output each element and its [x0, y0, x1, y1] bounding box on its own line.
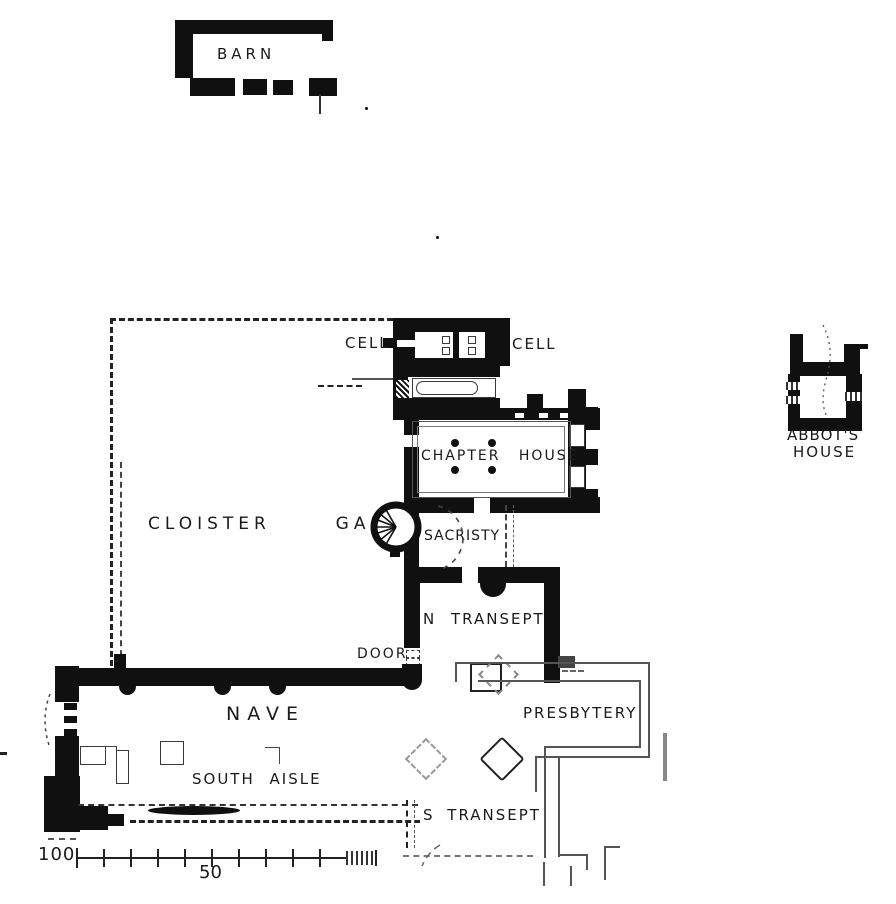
cloister-dashed-left	[110, 318, 113, 666]
south-wall-dashes	[130, 820, 420, 823]
cell-right-label: CELL	[512, 337, 557, 353]
presbytery-outer-top	[455, 662, 649, 664]
chapel-line-v2	[604, 846, 606, 880]
west-door-step-1	[64, 703, 77, 710]
transept-apse-bump	[480, 583, 506, 597]
abbot-east-door	[845, 392, 863, 401]
scale-mid-label: 50	[199, 864, 222, 883]
scale-tick-1	[103, 849, 105, 867]
presbytery-inner-bottom	[545, 746, 641, 748]
cell1-mark-a	[442, 336, 450, 344]
s-transept-east-line-2	[558, 757, 560, 857]
door-jamb-a	[406, 650, 420, 658]
chapter-east-window-1	[569, 424, 585, 447]
cloister-alley-line	[352, 378, 394, 380]
abbot-west-door-2	[786, 396, 800, 404]
door-label: DOOR	[357, 647, 408, 662]
cell2-mark-b	[468, 347, 476, 355]
abbots-house-label-1: ABBOT'S	[787, 428, 859, 444]
scale-hatch	[346, 851, 376, 865]
s-transept-dashed-west-2	[414, 800, 415, 848]
transept-north-wall	[404, 567, 560, 583]
chapter-column-sw	[451, 466, 459, 474]
presbytery-inner-top	[478, 680, 641, 682]
chapter-east-buttress-2	[584, 449, 598, 465]
chapter-column-nw	[451, 439, 459, 447]
barn-wall-top-end	[322, 20, 333, 41]
chapel-tick-1	[543, 862, 545, 886]
cloister-dashed-left-inner	[120, 462, 122, 666]
sacristy-west-wall	[404, 513, 419, 567]
s-transept-south-dashes	[403, 855, 533, 857]
stair-hatch	[396, 380, 409, 398]
transept-east-wall	[544, 583, 560, 683]
scale-tick-2	[130, 849, 132, 867]
page-speck-1	[365, 107, 368, 110]
presbytery-outer-right	[648, 662, 650, 758]
spiral-stair-stub	[390, 548, 400, 557]
chapel-tick-2	[570, 866, 572, 886]
s-transept-east-line-3	[535, 756, 537, 792]
scale-start-label: 100	[38, 846, 75, 865]
west-front-lower	[44, 776, 80, 832]
barn-wall-bottom-3	[273, 80, 293, 95]
abbot-wall-ne	[844, 344, 860, 376]
chapter-column-se	[488, 466, 496, 474]
cell1-mark-b	[442, 347, 450, 355]
nave-respond-1	[119, 686, 136, 695]
chapter-north-door-a	[515, 413, 524, 418]
south-aisle-label: SOUTH AISLE	[192, 772, 322, 788]
presbytery-east-bar	[663, 733, 667, 781]
transept-west-wall	[404, 583, 420, 648]
cloister-alley-dashes	[318, 385, 362, 387]
barn-wall-bottom-1	[190, 78, 235, 96]
nave-north-wall	[58, 668, 420, 686]
scale-tick-7	[265, 849, 267, 867]
scale-tick-6	[238, 849, 240, 867]
chapter-east-buttress-1	[584, 407, 598, 423]
aisle-arcade-dashes	[78, 804, 418, 806]
chapter-east-buttress-3	[584, 489, 598, 507]
scale-tick-end	[375, 850, 377, 866]
barn-wall-bottom-4	[309, 78, 337, 96]
cell-block-band-upper	[408, 366, 500, 377]
chapter-house-label: CHAPTER HOUSE	[421, 449, 578, 464]
scale-line	[76, 857, 376, 859]
west-front-upper	[55, 666, 79, 702]
sacristy-east-dashes-2	[513, 505, 514, 567]
aisle-arcade-lens	[148, 806, 240, 815]
s-transept-label: S TRANSEPT	[423, 808, 541, 824]
crossing-pier-se-diamond	[479, 736, 524, 781]
scale-tick-8	[292, 849, 294, 867]
sacristy-east-dashes-1	[505, 505, 507, 567]
chapter-east-window-2	[569, 466, 585, 488]
presbytery-inner-right	[639, 680, 641, 748]
chapter-south-door	[474, 498, 490, 513]
page-speck-2	[436, 236, 439, 239]
margin-tick	[0, 752, 7, 755]
sw-corner-dashes	[48, 838, 76, 840]
presbytery-outer-left	[455, 662, 457, 682]
stair-inner	[416, 381, 478, 395]
s-transept-dashed-west-1	[406, 800, 408, 848]
chapter-north-buttress-1	[527, 394, 543, 410]
cloister-garth-label: CLOISTER GARTH	[148, 516, 419, 534]
cell2-mark-a	[468, 336, 476, 344]
chapel-line-h1	[560, 854, 588, 856]
nave-north-tick	[114, 654, 126, 668]
west-front-mid	[55, 736, 79, 778]
scale-tick-3	[157, 849, 159, 867]
presbytery-outer-bottom	[535, 756, 649, 758]
south-wall-seg	[86, 814, 124, 826]
chapel-line-v1	[586, 854, 588, 870]
presbytery-label: PRESBYTERY	[523, 706, 637, 722]
barn-label: BARN	[217, 47, 275, 63]
n-transept-label: N TRANSEPT	[423, 612, 545, 628]
s-transept-east-line-1	[544, 746, 546, 858]
nave-pier-tall	[116, 750, 129, 784]
abbots-house-label-2: HOUSE	[793, 445, 856, 461]
chapel-line-h2	[604, 846, 620, 848]
west-door-step-2	[64, 716, 77, 723]
nave-respond-2	[214, 686, 231, 695]
scale-tick-9	[319, 849, 321, 867]
sacristy-label: SACRISTY	[424, 529, 500, 544]
abbey-plan-canvas: BARN CLOISTER GARTH CELL CELL	[0, 0, 896, 904]
chapter-north-door-c	[560, 413, 568, 418]
crossing-pier-sw-diamond-dashed	[405, 738, 447, 780]
barn-wall-left	[175, 20, 193, 78]
cloister-dashed-top	[110, 318, 402, 321]
nave-pier-bracket-1	[98, 746, 117, 763]
transept-east-dashes	[562, 670, 584, 672]
nave-pier-square	[160, 741, 184, 765]
barn-wall-bottom-2	[243, 79, 267, 95]
chapter-north-door-b	[539, 413, 548, 418]
barn-wall-top	[183, 20, 333, 34]
nave-label: NAVE	[226, 705, 305, 725]
abbot-west-door-1	[786, 382, 800, 390]
west-door-dotted-bulge	[45, 694, 50, 748]
nave-respond-3	[269, 686, 286, 695]
cell-left-label: CELL	[345, 336, 390, 352]
scale-tick-4	[184, 849, 186, 867]
cell-door-slot	[397, 340, 415, 347]
abbot-tick-e	[860, 344, 868, 349]
west-door-step-3	[64, 729, 77, 736]
chapter-column-ne	[488, 439, 496, 447]
barn-tick	[319, 94, 321, 114]
nave-pier-bracket-2	[265, 747, 280, 764]
transept-north-door	[462, 567, 478, 583]
